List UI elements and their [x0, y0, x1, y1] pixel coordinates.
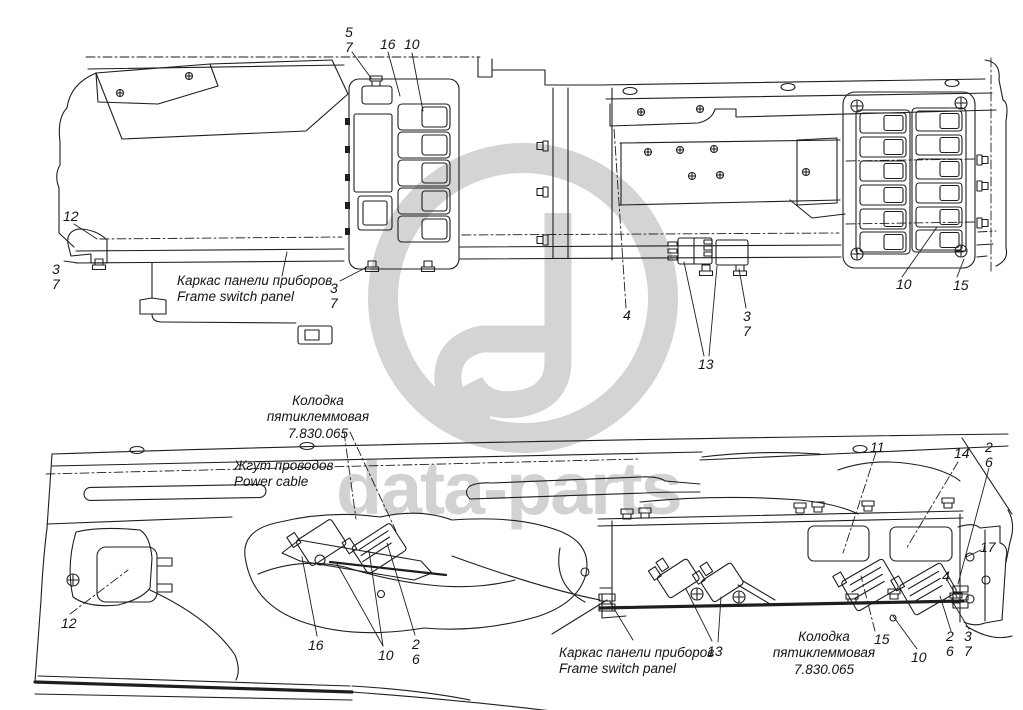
callout-4-top: 4 [623, 308, 631, 323]
callout-3-7-top-mid: 3 7 [743, 309, 751, 338]
top-view-drawing [57, 52, 1007, 356]
callout-12-top: 12 [63, 209, 79, 224]
callout-10-bottom-right: 10 [911, 650, 927, 665]
callout-13-top: 13 [698, 357, 714, 372]
right-relay-panel [843, 92, 988, 268]
technical-drawing [0, 0, 1023, 710]
left-relay-panel [345, 76, 459, 272]
callout-2-6-bottom-center: 2 6 [412, 637, 420, 666]
callout-3-7-bottom-right: 3 7 [964, 629, 972, 658]
label-frame-switch-panel-top: Каркас панели приборов Frame switch pane… [177, 273, 332, 306]
callout-16-top: 16 [380, 37, 396, 52]
bottom-view-leader-lines [70, 432, 989, 649]
callout-17-bottom: 17 [980, 540, 996, 555]
label-frame-switch-panel-bottom: Каркас панели приборов Frame switch pane… [559, 645, 714, 678]
callout-15-bottom: 15 [874, 632, 890, 647]
callout-2-6-bottom-top: 2 6 [985, 440, 993, 469]
callout-5-7-top: 5 7 [345, 25, 353, 54]
center-relay-bracket [282, 512, 446, 598]
parts-diagram-page: data-parts [0, 0, 1023, 710]
connector-plugs-bottom-view [647, 547, 745, 604]
relay-box-left [67, 547, 172, 602]
callout-13-bottom: 13 [707, 644, 723, 659]
callout-11-bottom: 11 [870, 440, 885, 455]
callout-3-7-top-panel: 3 7 [330, 281, 338, 310]
callout-3-7-top-left: 3 7 [52, 262, 60, 291]
callout-12-bottom: 12 [61, 616, 77, 631]
label-power-cable: Жгут проводов Power cable [234, 458, 334, 491]
connector-blocks-top-view [668, 238, 748, 276]
label-terminal-block-right: Колодка пятиклеммовая 7.830.065 [768, 629, 880, 678]
callout-14-bottom: 14 [954, 446, 970, 461]
label-terminal-block-left: Колодка пятиклеммовая 7.830.065 [253, 393, 383, 442]
top-view-leader-lines [64, 52, 964, 356]
callout-10-bottom-center: 10 [378, 648, 394, 663]
callout-15-top: 15 [953, 278, 969, 293]
callout-4-bottom: 4 [942, 569, 950, 584]
callout-16-bottom: 16 [308, 638, 324, 653]
callout-2-6-bottom-right: 2 6 [946, 629, 954, 658]
callout-10-top-left: 10 [404, 37, 420, 52]
callout-10-top-right: 10 [896, 277, 912, 292]
